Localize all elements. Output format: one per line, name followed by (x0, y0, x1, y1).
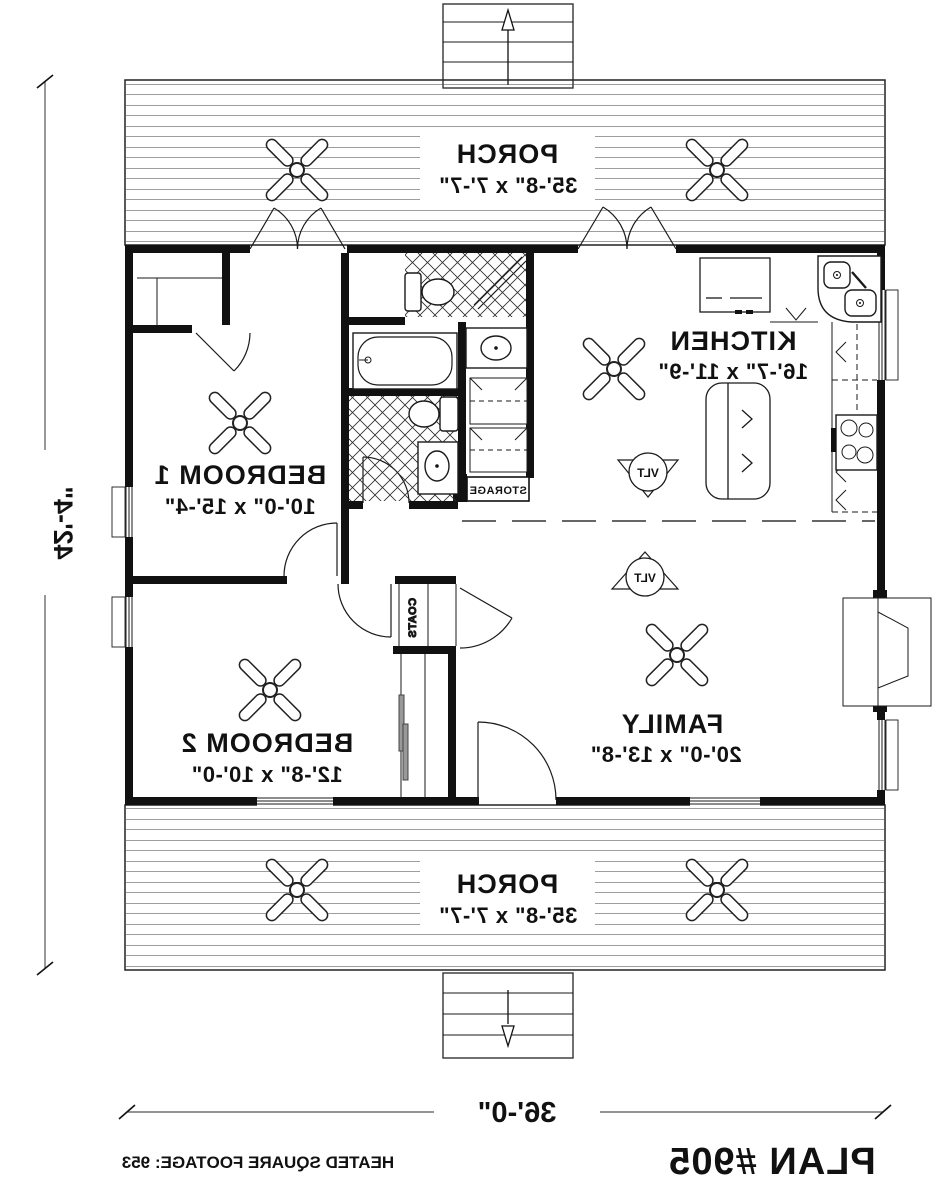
kitchen-size: 16'-7" x 11'-9" (658, 359, 808, 384)
bedroom2-size: 12'-8" x 10'-0" (191, 762, 342, 787)
floor-plan-canvas: STORAGE COATS (0, 0, 935, 1200)
porch-bottom-size: 35'-8" x 7'-7" (439, 903, 578, 928)
coats-label: COATS (407, 598, 419, 638)
refrigerator (700, 258, 770, 314)
kitchen-sink (818, 256, 881, 322)
family-label: FAMILY (621, 709, 724, 739)
bedroom2-label: BEDROOM 2 (181, 728, 354, 758)
family-size: 20'-0" x 13'-8" (590, 742, 741, 767)
sink-vanity-bottom (418, 442, 458, 494)
dimension-height-label: 42'-4" (48, 486, 78, 559)
stairs-top (443, 4, 573, 88)
vlt-label: VLT (636, 466, 658, 480)
porch-bottom-label: PORCH (456, 869, 559, 899)
porch-top-size: 35'-8" x 7'-7" (439, 173, 578, 198)
kitchen-label: KITCHEN (670, 326, 797, 356)
sink-vanity-top (466, 328, 527, 368)
window-family-bottom (690, 796, 760, 806)
window-bedroom2-bottom (257, 796, 333, 806)
bath-top-tile (405, 253, 526, 317)
bedroom1-size: 10'-0" x 15'-4" (164, 494, 315, 519)
kitchen-island (706, 383, 770, 499)
dimension-width-label: 36'-0" (478, 1097, 557, 1129)
porch-top-label: PORCH (456, 139, 559, 169)
storage-box: STORAGE (467, 477, 529, 501)
plan-number: PLAN #905 (668, 1141, 876, 1183)
fireplace (843, 598, 931, 706)
stove (831, 415, 877, 470)
stairs-bottom (443, 973, 573, 1058)
heated-square-footage: HEATED SQUARE FOOTAGE: 953 (122, 1153, 394, 1172)
vlt-label: VLT (633, 571, 655, 585)
floor-plan-page: STORAGE COATS (0, 0, 935, 1200)
storage-label: STORAGE (469, 485, 527, 497)
bathtub (353, 333, 457, 389)
bedroom1-label: BEDROOM 1 (154, 460, 327, 490)
